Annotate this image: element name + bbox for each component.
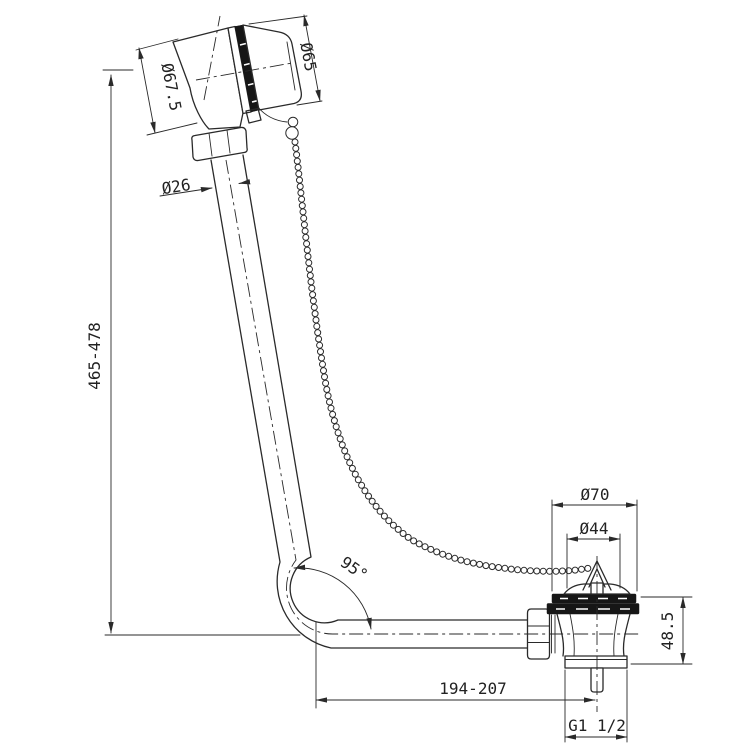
dim-pipe-length: 194-207 bbox=[316, 622, 595, 708]
dim-pipe-length-label: 194-207 bbox=[439, 679, 506, 698]
dim-overall-height-label: 465-478 bbox=[85, 322, 104, 389]
waste-body bbox=[557, 614, 630, 656]
plug-chain bbox=[295, 142, 590, 571]
dim-pipe-diameter-label: Ø26 bbox=[160, 175, 192, 198]
overflow-backnut bbox=[192, 127, 247, 160]
dim-bend-angle-label: 95° bbox=[337, 552, 372, 584]
dim-plug-label: Ø44 bbox=[580, 519, 609, 538]
dim-waste-height: 48.5 bbox=[631, 597, 692, 664]
technical-drawing-canvas: 465-478 Ø67.5 Ø65 Ø26 95° Ø70 Ø44 bbox=[0, 0, 750, 750]
dim-waste-height-label: 48.5 bbox=[658, 612, 677, 651]
dim-overflow-cap-label: Ø65 bbox=[296, 41, 320, 73]
overflow-pipe bbox=[211, 155, 546, 648]
foot-flange bbox=[565, 656, 627, 668]
dim-overflow-body-label: Ø67.5 bbox=[157, 61, 185, 112]
plug-chain-links bbox=[292, 139, 591, 574]
dim-thread-label: G1 1/2 bbox=[568, 716, 626, 735]
chain-ring bbox=[286, 117, 298, 139]
bath-waste-overflow-drawing: 465-478 Ø67.5 Ø65 Ø26 95° Ø70 Ø44 bbox=[0, 0, 750, 750]
dim-waste-flange-label: Ø70 bbox=[581, 485, 610, 504]
strainer-flange bbox=[547, 604, 639, 615]
dim-pipe-diameter: Ø26 bbox=[160, 175, 248, 198]
